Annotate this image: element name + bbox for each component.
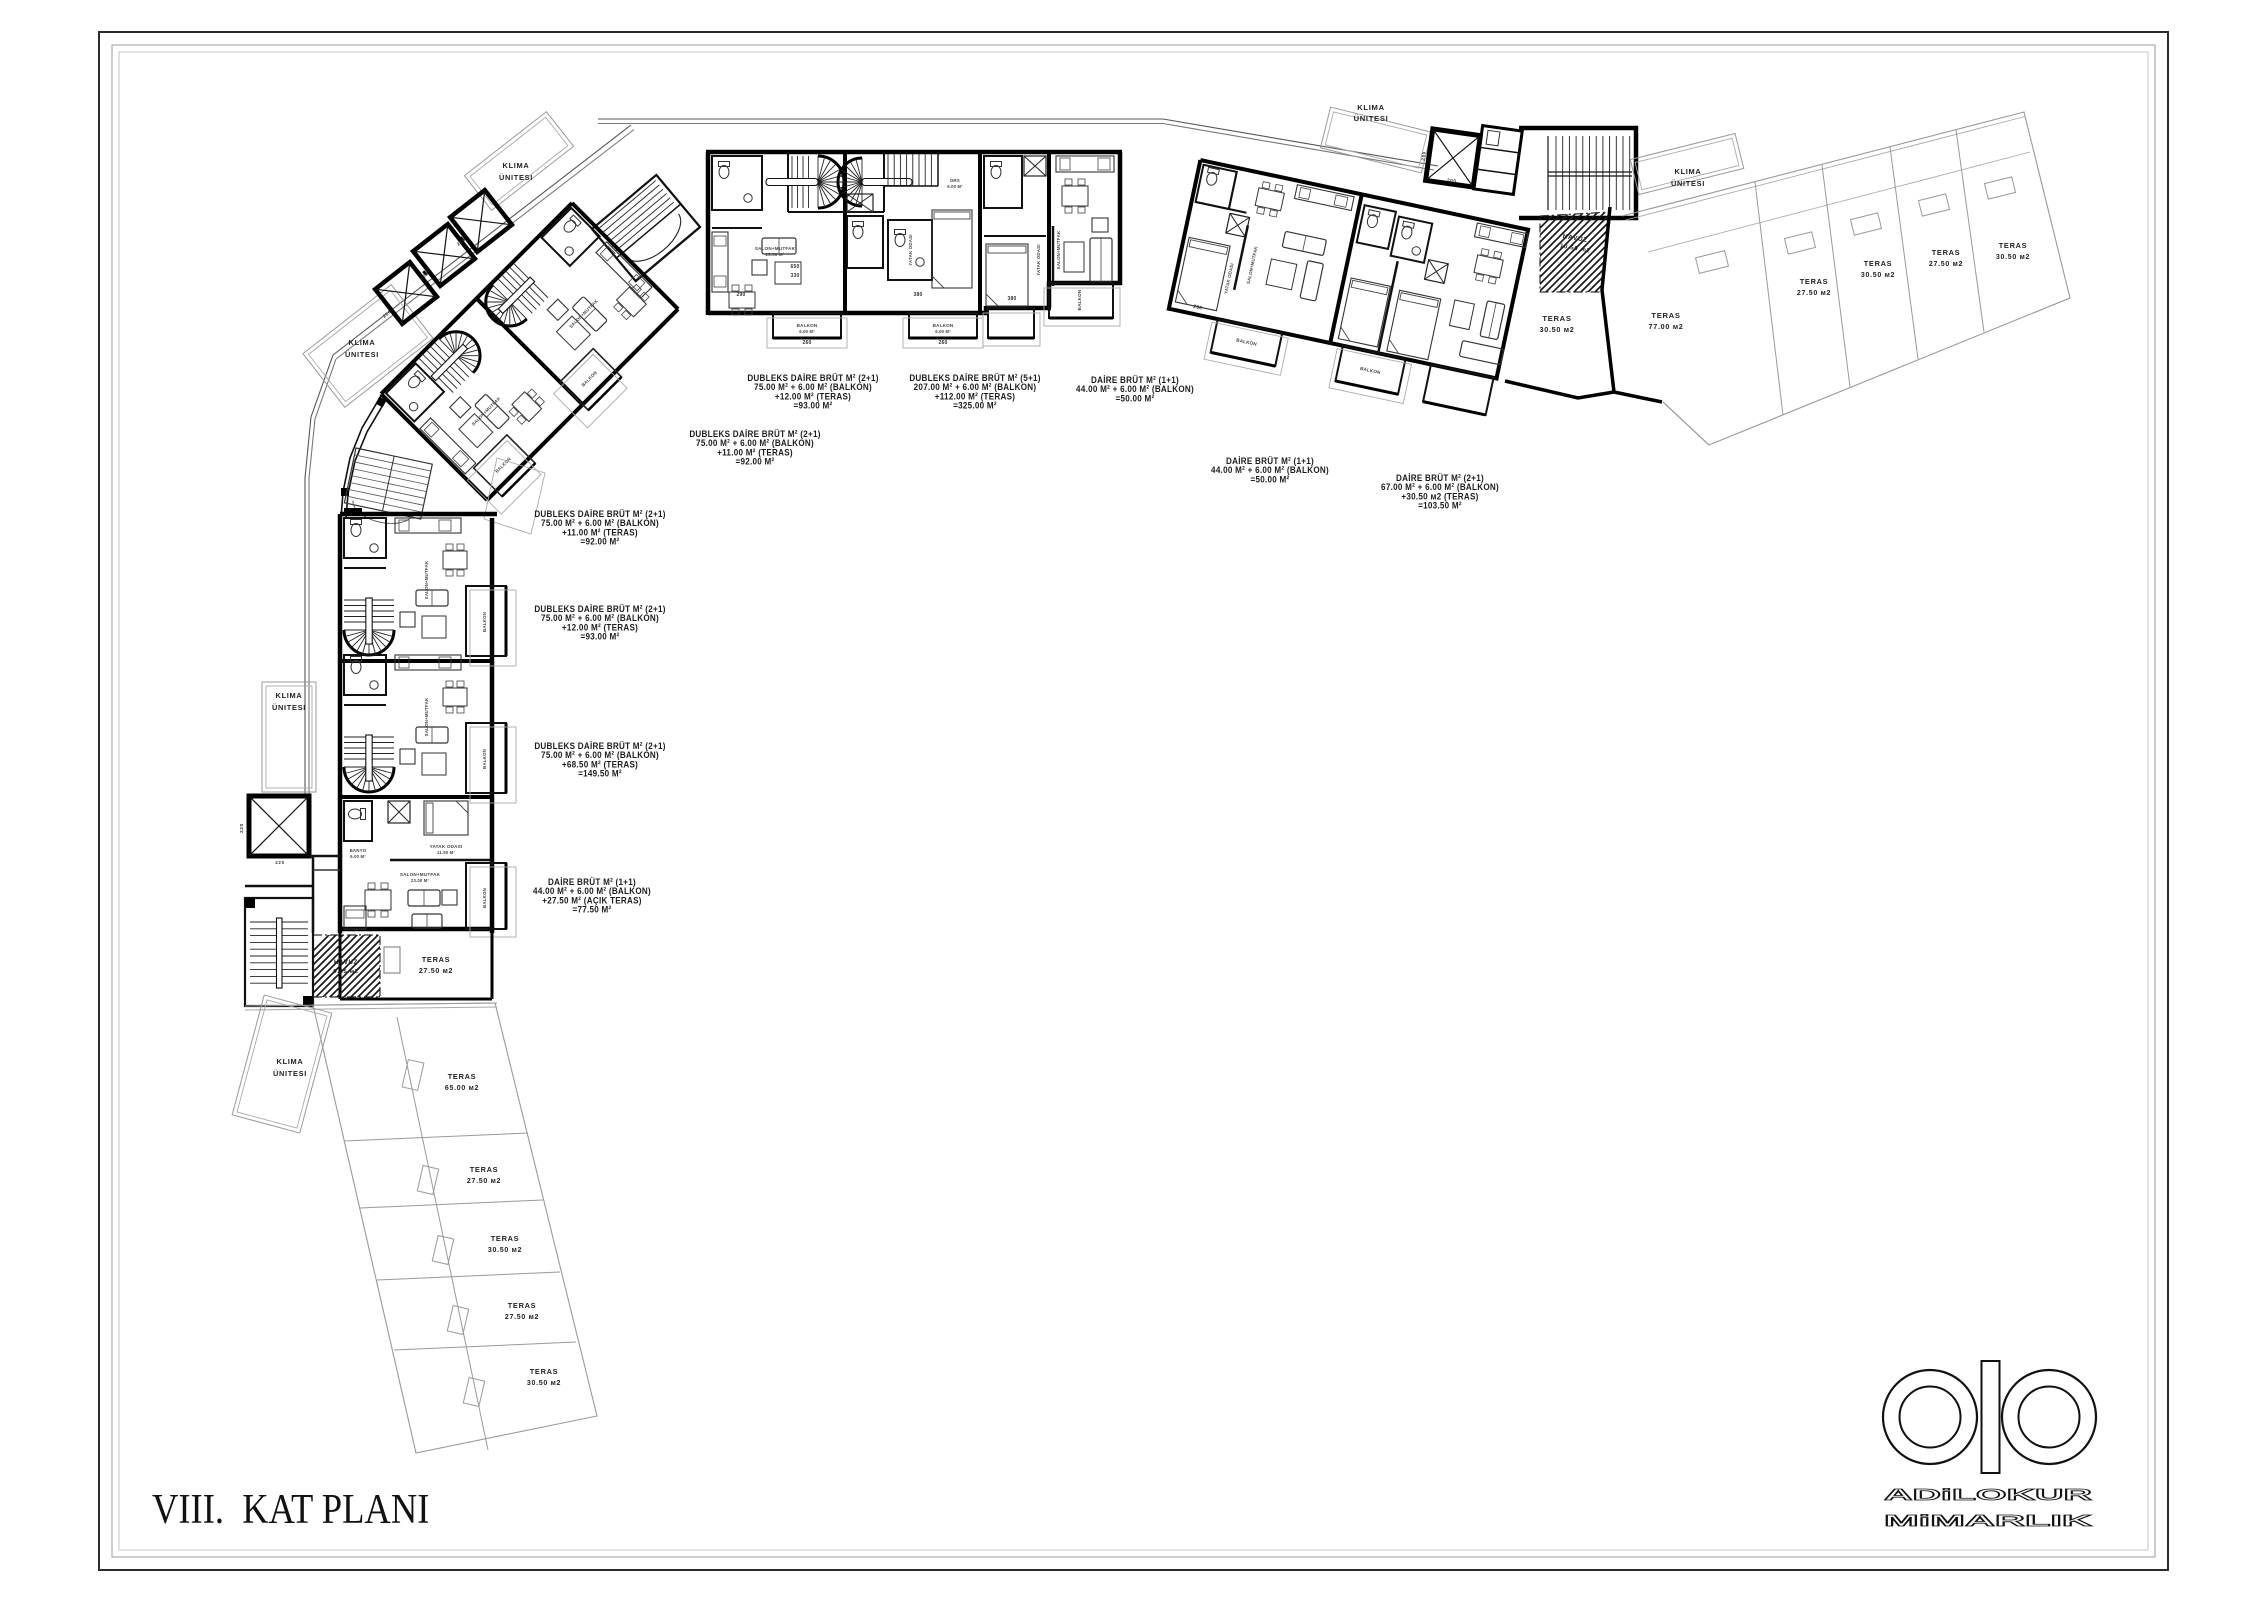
svg-text:=92.00 M²: =92.00 M²: [580, 536, 619, 547]
svg-text:BALKON: BALKON: [797, 323, 818, 328]
svg-text:YATAK ODASI: YATAK ODASI: [908, 234, 913, 265]
svg-text:BALKON: BALKON: [482, 888, 487, 908]
svg-text:TERAS: TERAS: [1999, 241, 2028, 250]
svg-text:6.00 M²: 6.00 M²: [935, 329, 951, 334]
svg-text:9.65 м2: 9.65 м2: [333, 969, 358, 975]
svg-text:KLIMA: KLIMA: [276, 691, 303, 700]
svg-text:TERAS: TERAS: [1864, 259, 1893, 268]
svg-text:TERAS: TERAS: [530, 1367, 559, 1376]
svg-text:65.00 м2: 65.00 м2: [445, 1085, 479, 1092]
svg-text:=149.50 M²: =149.50 M²: [578, 768, 622, 779]
svg-text:KLIMA: KLIMA: [349, 338, 376, 347]
svg-text:=325.00 M²: =325.00 M²: [953, 400, 997, 411]
svg-text:220: 220: [239, 823, 244, 833]
svg-text:KLIMA: KLIMA: [277, 1057, 304, 1066]
svg-text:TERAS: TERAS: [1651, 311, 1680, 320]
svg-text:SALON+MUTFAK: SALON+MUTFAK: [424, 560, 429, 599]
svg-text:TERAS: TERAS: [1932, 248, 1961, 257]
svg-text:BANYO: BANYO: [350, 848, 367, 853]
svg-text:380: 380: [1008, 296, 1017, 302]
svg-text:BALKON: BALKON: [933, 323, 954, 328]
svg-text:YATAK ODASI: YATAK ODASI: [1036, 244, 1041, 275]
svg-text:KLIMA: KLIMA: [1357, 103, 1385, 112]
svg-text:330: 330: [791, 273, 800, 279]
svg-text:260: 260: [939, 340, 948, 346]
svg-text:650: 650: [791, 264, 800, 270]
svg-text:SALON+MUTFAK: SALON+MUTFAK: [1056, 230, 1061, 269]
svg-text:TERAS: TERAS: [1542, 314, 1571, 323]
svg-text:ÜNITESI: ÜNITESI: [1354, 114, 1389, 123]
svg-text:27.50 м2: 27.50 м2: [419, 968, 453, 975]
svg-text:ADiLOKUR: ADiLOKUR: [1884, 1487, 2092, 1504]
svg-text:=50.00 M²: =50.00 M²: [1250, 474, 1289, 485]
svg-text:MiMARLIK: MiMARLIK: [1884, 1513, 2094, 1530]
svg-text:ÜNITESI: ÜNITESI: [1671, 179, 1705, 188]
svg-text:77.00 м2: 77.00 м2: [1649, 322, 1684, 331]
svg-text:SALON+MUTFAK: SALON+MUTFAK: [400, 872, 441, 877]
svg-text:YATAK ODASI: YATAK ODASI: [430, 844, 463, 849]
svg-text:ÜNITESI: ÜNITESI: [272, 703, 306, 712]
svg-text:ÜNITESI: ÜNITESI: [345, 350, 379, 359]
svg-text:6.00 M²: 6.00 M²: [947, 184, 963, 189]
svg-text:11.50 M²: 11.50 M²: [437, 850, 455, 855]
svg-text:=93.00 M²: =93.00 M²: [793, 400, 832, 411]
svg-text:220: 220: [275, 860, 285, 865]
svg-text:23.00 M²: 23.00 M²: [411, 878, 430, 883]
svg-text:27.50 м2: 27.50 м2: [467, 1178, 501, 1185]
svg-text:30.50 м2: 30.50 м2: [527, 1380, 561, 1387]
svg-text:=103.50 M²: =103.50 M²: [1418, 500, 1462, 511]
svg-text:25.50 M²: 25.50 M²: [766, 252, 785, 257]
svg-text:SALON+MUTFAK: SALON+MUTFAK: [424, 697, 429, 736]
svg-text:380: 380: [914, 292, 923, 298]
svg-text:6.00 M²: 6.00 M²: [799, 329, 815, 334]
svg-text:KLIMA: KLIMA: [503, 161, 530, 170]
svg-text:30.50 м2: 30.50 м2: [1996, 254, 2030, 261]
svg-text:6.00 M²: 6.00 M²: [350, 854, 366, 859]
svg-text:260: 260: [803, 340, 812, 346]
svg-text:TERAS: TERAS: [491, 1234, 520, 1243]
svg-text:ÜNITESI: ÜNITESI: [499, 173, 533, 182]
svg-text:BALKON: BALKON: [1077, 289, 1082, 310]
svg-text:27.50 м2: 27.50 м2: [505, 1314, 539, 1321]
svg-text:TERAS: TERAS: [448, 1072, 477, 1081]
svg-text:HAVUZ: HAVUZ: [334, 959, 358, 966]
svg-text:BALKON: BALKON: [482, 612, 487, 632]
svg-text:27.50 м2: 27.50 м2: [1929, 261, 1963, 268]
svg-text:BALKON: BALKON: [482, 749, 487, 769]
svg-text:27.50 м2: 27.50 м2: [1797, 290, 1831, 297]
svg-text:VIII. KAT PLANI: VIII. KAT PLANI: [152, 1486, 429, 1533]
svg-text:TERAS: TERAS: [422, 955, 451, 964]
svg-text:=50.00 M²: =50.00 M²: [1115, 393, 1154, 404]
svg-text:30.50 м2: 30.50 м2: [488, 1247, 522, 1254]
svg-text:SALON+MUTFAK: SALON+MUTFAK: [755, 246, 796, 251]
svg-text:ÜNITESI: ÜNITESI: [273, 1069, 307, 1078]
svg-text:290: 290: [737, 292, 746, 298]
svg-text:DRS: DRS: [950, 178, 960, 183]
svg-text:=93.00 M²: =93.00 M²: [580, 631, 619, 642]
svg-text:=77.50 M²: =77.50 M²: [572, 904, 611, 915]
svg-text:TERAS: TERAS: [470, 1165, 499, 1174]
svg-text:30.50 м2: 30.50 м2: [1861, 272, 1895, 279]
svg-text:TERAS: TERAS: [508, 1301, 537, 1310]
svg-text:KLIMA: KLIMA: [1675, 167, 1702, 176]
svg-text:30.50 м2: 30.50 м2: [1540, 325, 1575, 334]
svg-text:=92.00 M²: =92.00 M²: [735, 456, 774, 467]
svg-text:TERAS: TERAS: [1800, 277, 1829, 286]
